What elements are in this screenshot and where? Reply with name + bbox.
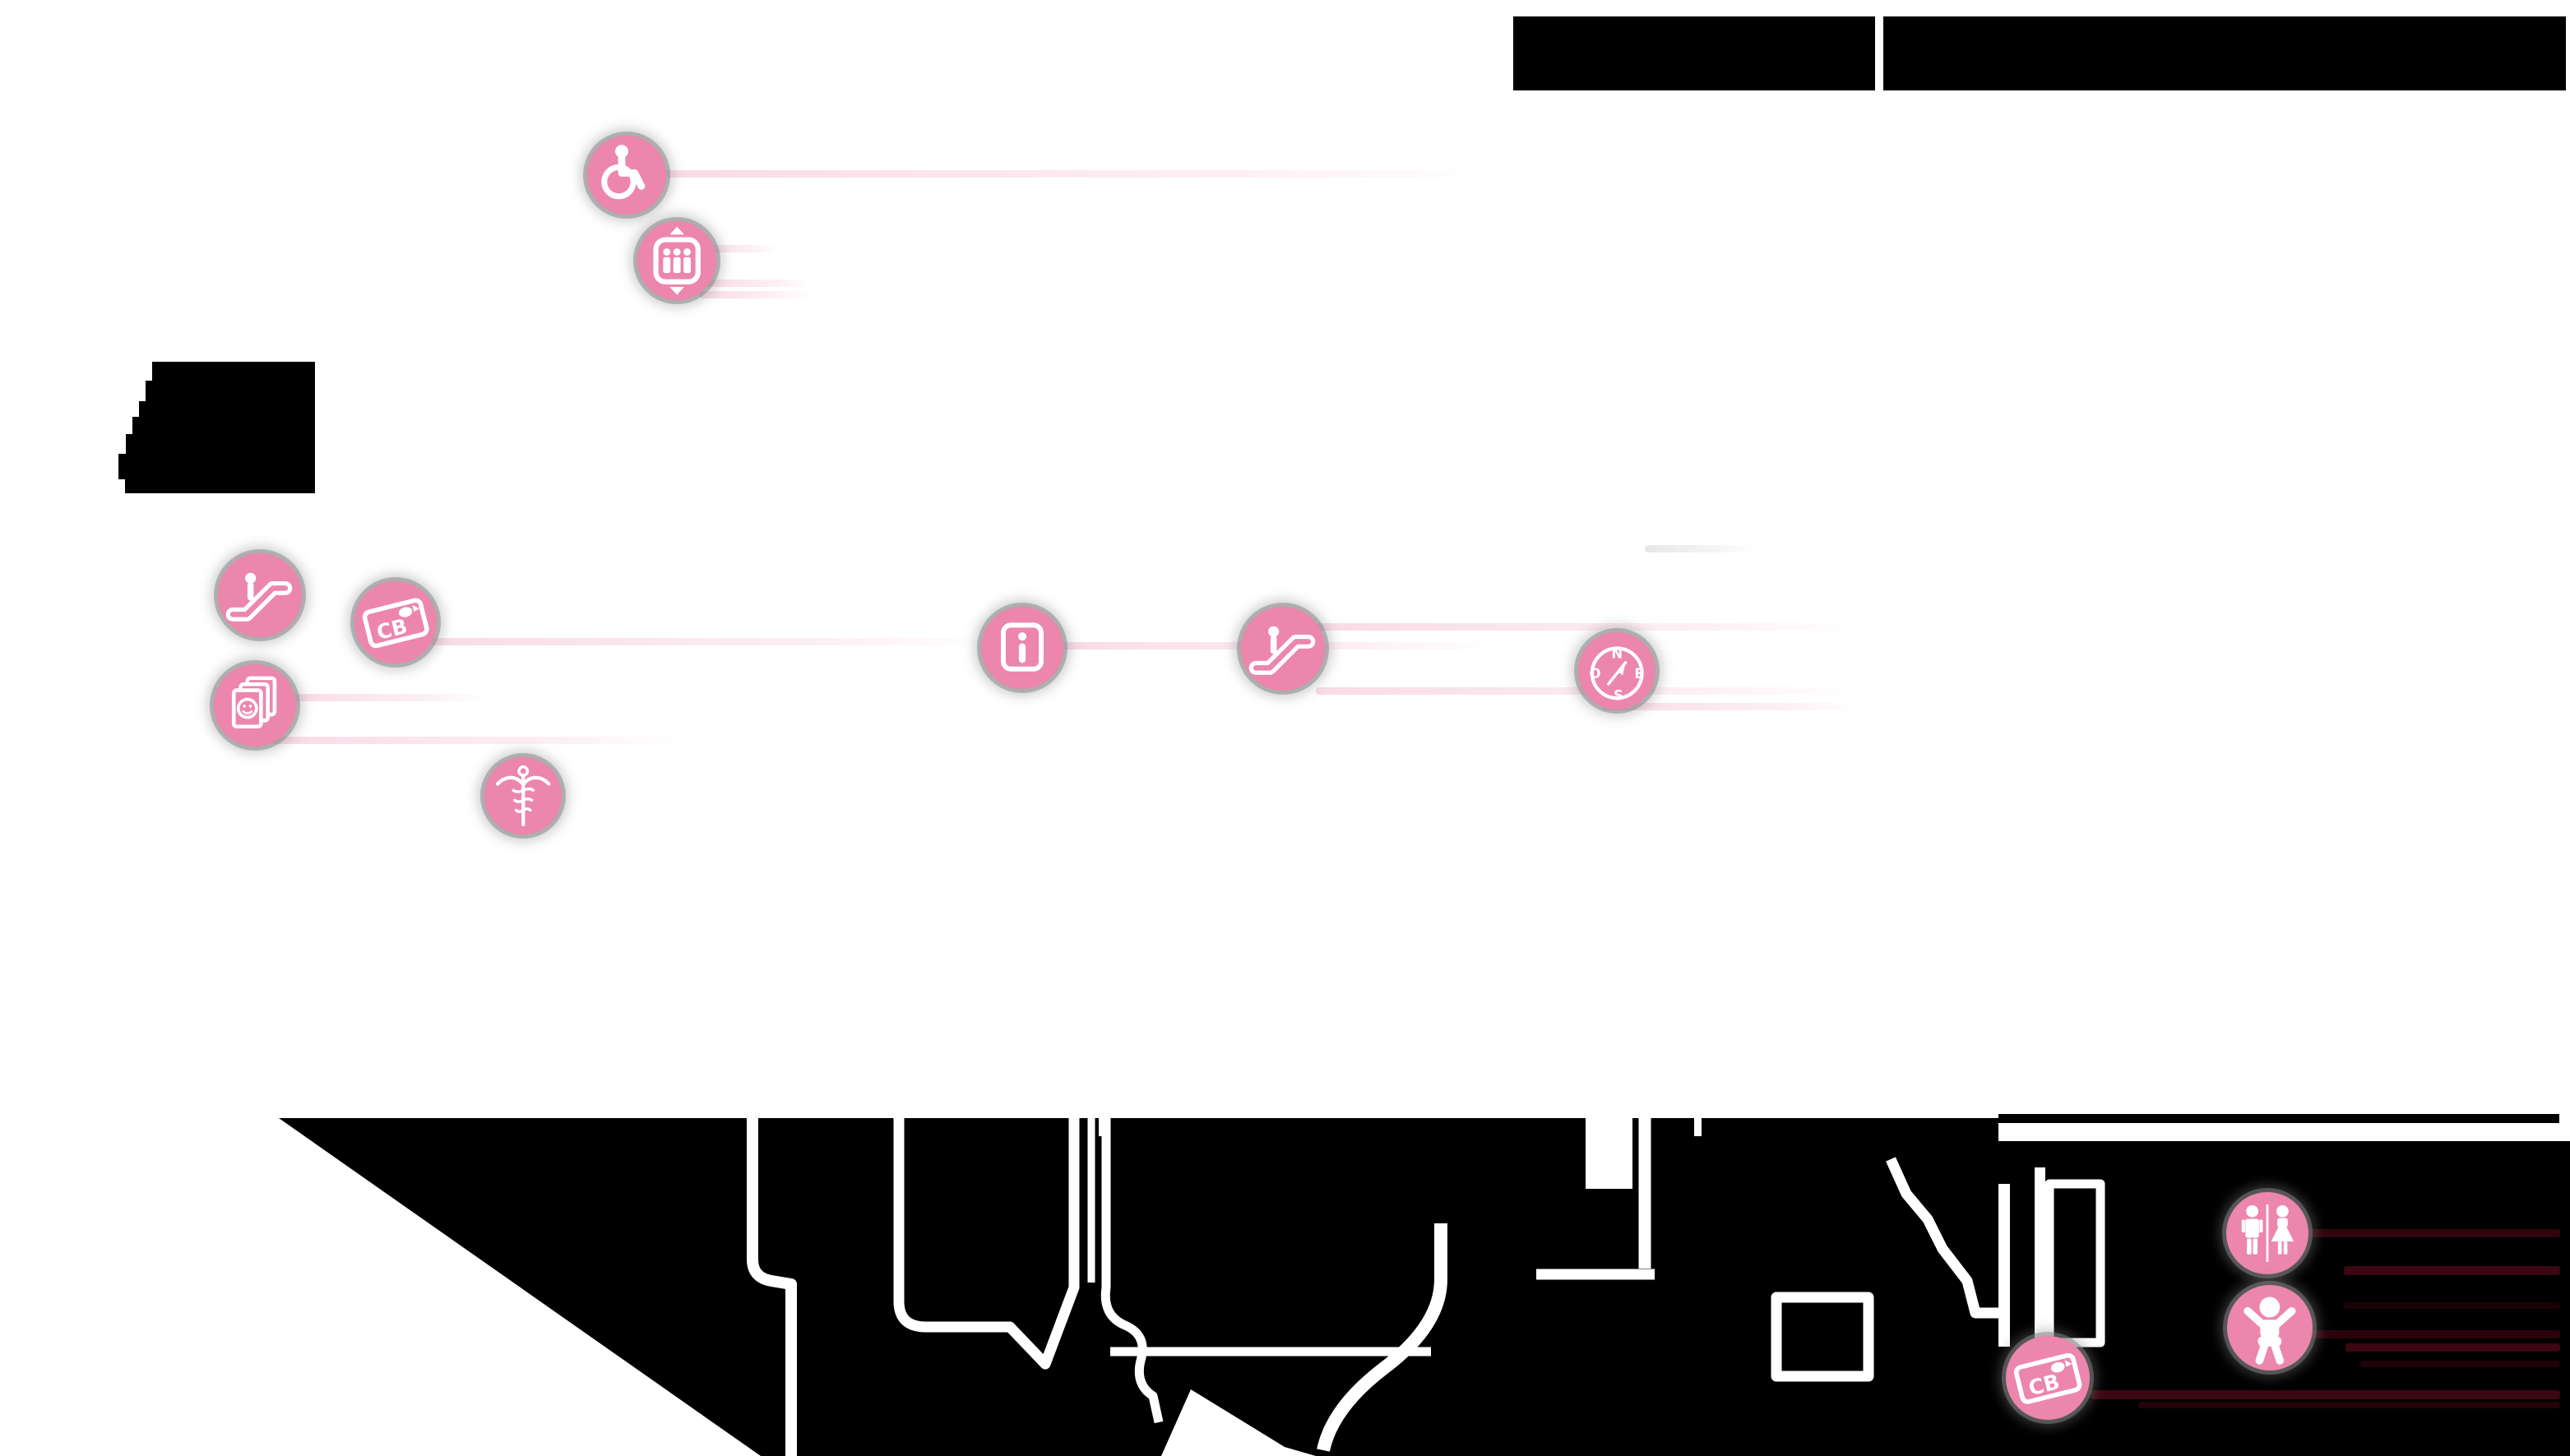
caduceus-icon bbox=[488, 760, 558, 831]
photo-booth-badge[interactable] bbox=[214, 664, 296, 746]
compass-badge[interactable] bbox=[1578, 632, 1655, 710]
photos-icon bbox=[217, 668, 293, 743]
escalator-icon bbox=[221, 557, 299, 634]
information-badge[interactable] bbox=[981, 607, 1063, 689]
card-icon bbox=[2009, 1339, 2086, 1417]
escalator-center-badge[interactable] bbox=[1241, 607, 1325, 691]
card-icon bbox=[358, 585, 433, 660]
compass-icon bbox=[1581, 636, 1652, 706]
toilets-badge[interactable] bbox=[2226, 1192, 2308, 1274]
station-map-canvas bbox=[0, 0, 2570, 1456]
bank-card-west-badge[interactable] bbox=[354, 581, 437, 663]
wheelchair-icon bbox=[590, 139, 663, 211]
map-markers-layer bbox=[0, 0, 2570, 1456]
bank-card-south-badge[interactable] bbox=[2006, 1336, 2090, 1420]
info-icon bbox=[984, 610, 1060, 686]
baby-icon bbox=[2230, 1288, 2309, 1367]
toilets-icon bbox=[2230, 1195, 2305, 1271]
elevator-badge[interactable] bbox=[637, 221, 716, 300]
baby-care-badge[interactable] bbox=[2227, 1285, 2313, 1370]
escalator-icon bbox=[1244, 610, 1322, 687]
wheelchair-access-badge[interactable] bbox=[587, 136, 666, 215]
escalator-west-badge[interactable] bbox=[218, 553, 302, 637]
first-aid-badge[interactable] bbox=[484, 757, 562, 834]
elevator-icon bbox=[641, 224, 713, 297]
